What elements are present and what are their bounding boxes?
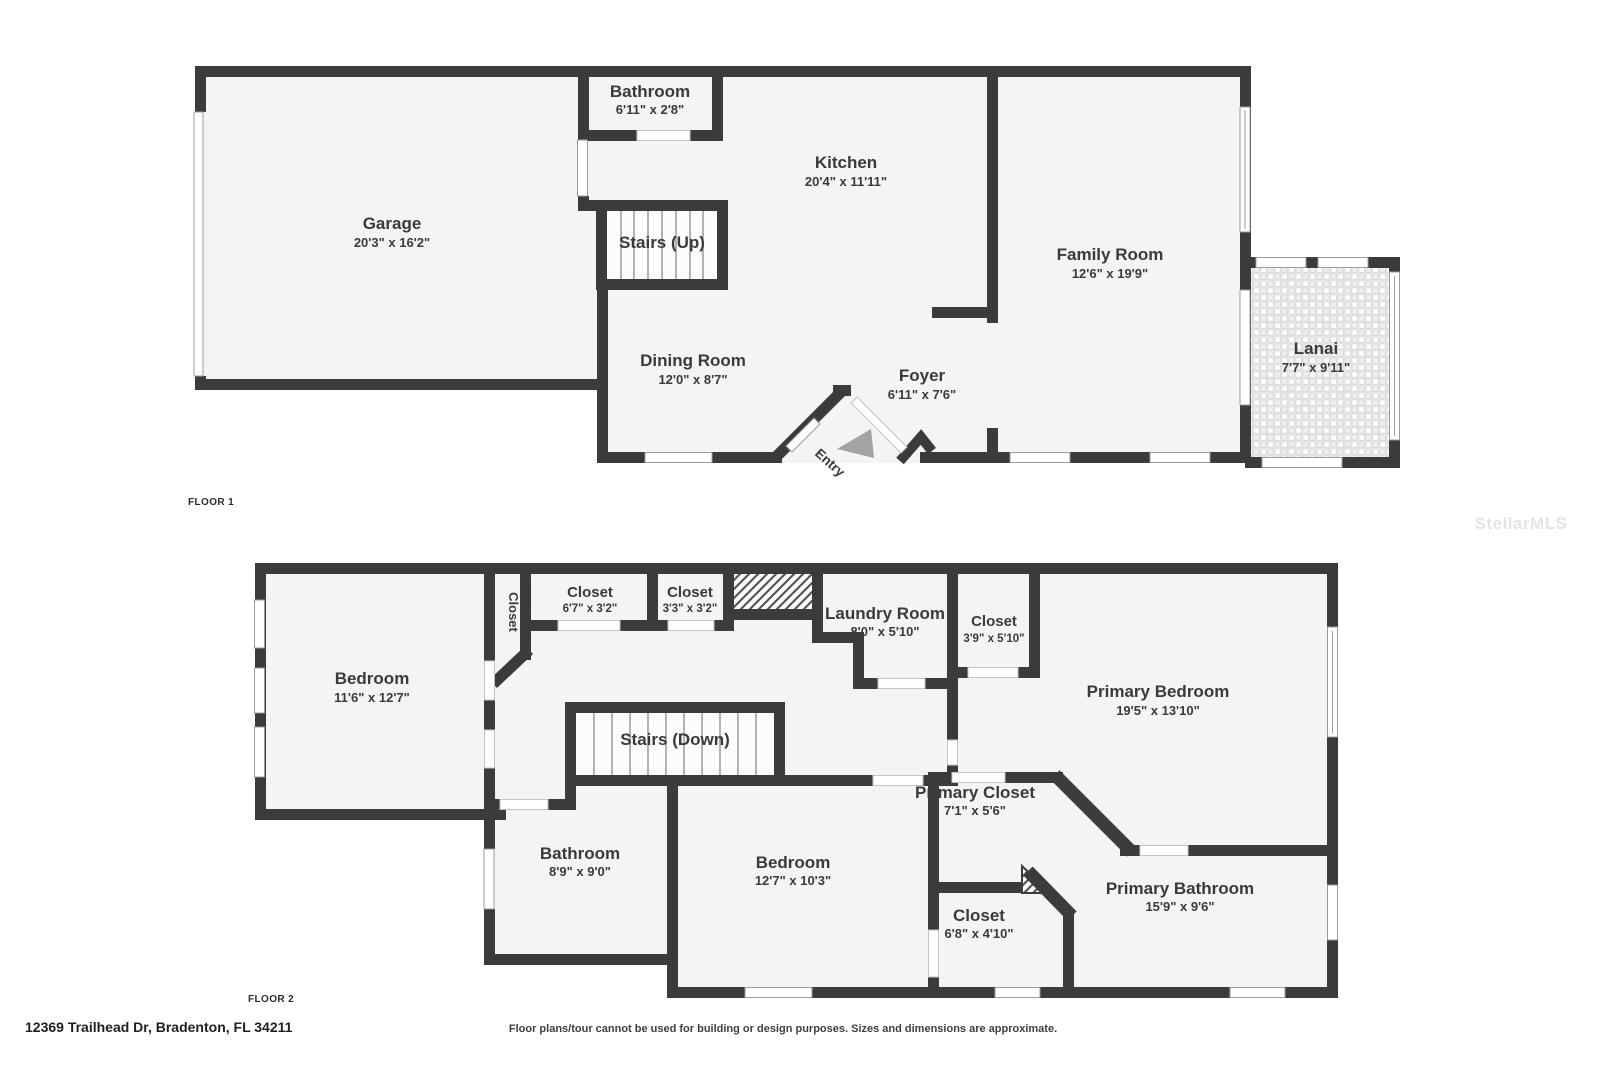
room-dims-closet-hall: 2'4" x 4'5" — [520, 587, 532, 637]
room-dims-garage: 20'3" x 16'2" — [354, 235, 430, 250]
room-dims-dining-room: 12'0" x 8'7" — [658, 372, 727, 387]
room-dims-family-room: 12'6" x 19'9" — [1072, 266, 1148, 281]
room-name-primary-closet: Primary Closet — [915, 783, 1035, 802]
garage-door — [194, 112, 203, 376]
disclaimer-text: Floor plans/tour cannot be used for buil… — [509, 1023, 1057, 1035]
room-name-foyer: Foyer — [899, 366, 946, 385]
room-name-primary-bedroom: Primary Bedroom — [1087, 682, 1230, 701]
room-dims-bathroom1: 6'11" x 2'8" — [616, 102, 684, 117]
floor-plan-page: Garage 20'3" x 16'2" Bathroom 6'11" x 2'… — [0, 0, 1600, 1066]
room-dims-primary-closet: 7'1" x 5'6" — [944, 803, 1006, 818]
room-name-closet-hall: Closet — [506, 592, 521, 632]
room-name-garage: Garage — [363, 214, 422, 233]
room-name-bedroom-left: Bedroom — [335, 669, 410, 688]
floor2-plan: Bedroom 11'6" x 12'7" Closet 2'4" x 4'5"… — [248, 563, 1338, 1005]
room-name-family-room: Family Room — [1057, 245, 1164, 264]
room-dims-closet-b: 3'3" x 3'2" — [663, 603, 718, 615]
room-dims-bathroom2: 8'9" x 9'0" — [549, 864, 611, 879]
room-name-bedroom-mid: Bedroom — [756, 853, 831, 872]
room-name-dining-room: Dining Room — [640, 351, 746, 370]
room-dims-closet-a: 6'7" x 3'2" — [563, 603, 618, 615]
floor1-plan: Garage 20'3" x 16'2" Bathroom 6'11" x 2'… — [188, 66, 1400, 508]
stellar-mls-watermark: StellarMLS — [1475, 514, 1568, 533]
room-name-stairs-down: Stairs (Down) — [620, 730, 730, 749]
room-name-closet-b: Closet — [667, 584, 713, 601]
room-name-lanai: Lanai — [1294, 339, 1338, 358]
room-dims-lanai: 7'7" x 9'11" — [1282, 360, 1350, 375]
room-name-closet-d: Closet — [953, 906, 1005, 925]
room-name-primary-bathroom: Primary Bathroom — [1106, 879, 1254, 898]
room-dims-closet-d: 6'8" x 4'10" — [944, 926, 1013, 941]
room-name-closet-a: Closet — [567, 584, 613, 601]
room-name-laundry: Laundry Room — [825, 604, 945, 623]
floor-plan-canvas: Garage 20'3" x 16'2" Bathroom 6'11" x 2'… — [0, 0, 1600, 1066]
room-dims-bedroom-left: 11'6" x 12'7" — [334, 690, 410, 705]
room-dims-kitchen: 20'4" x 11'11" — [805, 174, 887, 189]
hatched-chase — [734, 574, 812, 609]
room-dims-laundry: 8'0" x 5'10" — [850, 624, 919, 639]
room-name-stairs-up: Stairs (Up) — [619, 233, 705, 252]
room-dims-primary-bedroom: 19'5" x 13'10" — [1116, 703, 1200, 718]
hall-closet-vertical-label: Closet 2'4" x 4'5" — [506, 587, 532, 637]
room-dims-closet-c: 3'9" x 5'10" — [963, 633, 1024, 645]
room-dims-bedroom-mid: 12'7" x 10'3" — [755, 873, 831, 888]
room-name-bathroom2: Bathroom — [540, 844, 620, 863]
room-name-closet-c: Closet — [971, 613, 1017, 630]
property-address: 12369 Trailhead Dr, Bradenton, FL 34211 — [25, 1019, 293, 1035]
floor1-tag: FLOOR 1 — [188, 497, 234, 508]
room-dims-primary-bathroom: 15'9" x 9'6" — [1145, 899, 1214, 914]
room-name-bathroom1: Bathroom — [610, 82, 690, 101]
floor2-tag: FLOOR 2 — [248, 994, 294, 1005]
room-name-kitchen: Kitchen — [815, 153, 877, 172]
room-dims-foyer: 6'11" x 7'6" — [888, 387, 956, 402]
